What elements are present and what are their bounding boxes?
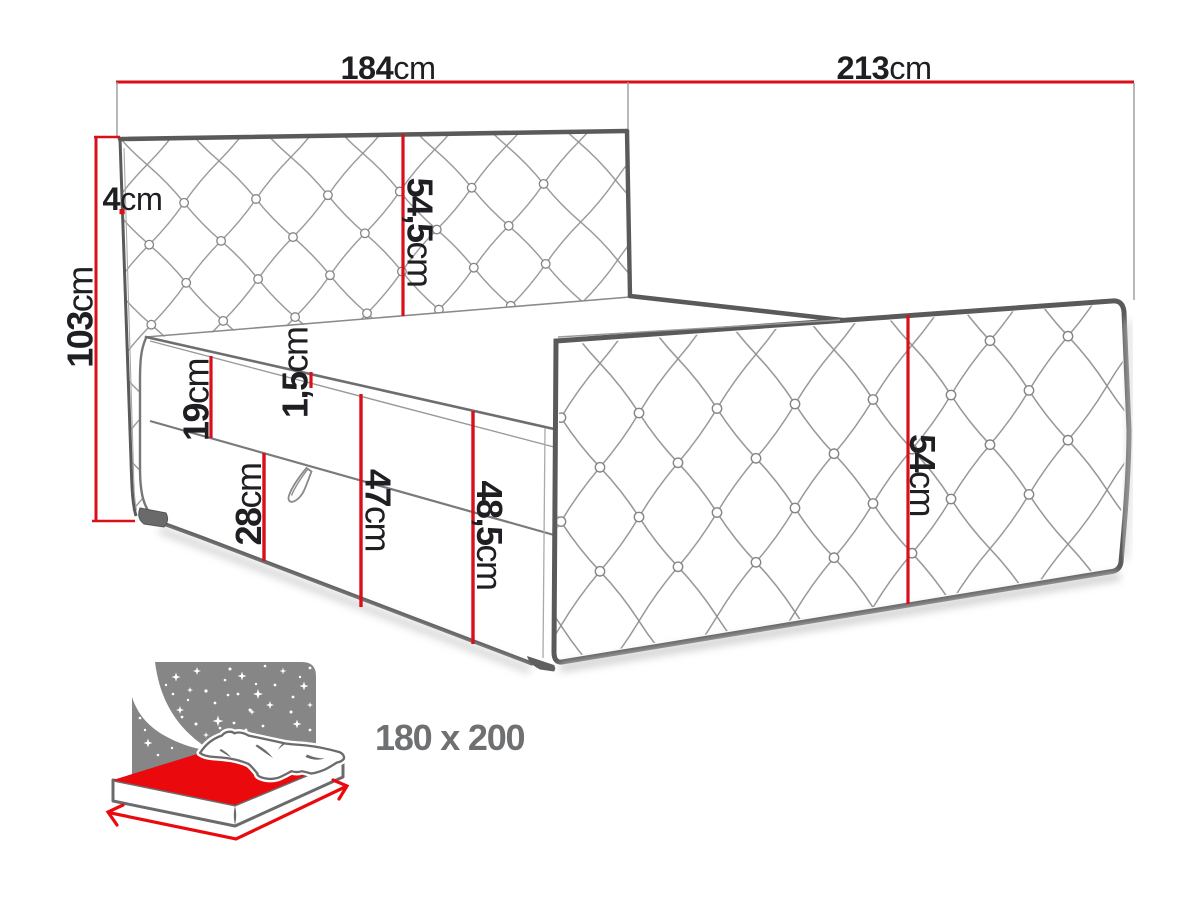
svg-text:1,5cm: 1,5cm [275, 328, 316, 419]
svg-text:47cm: 47cm [357, 469, 398, 551]
svg-text:180 x 200: 180 x 200 [375, 717, 525, 758]
svg-text:213cm: 213cm [836, 50, 931, 86]
svg-text:4cm: 4cm [103, 181, 163, 217]
svg-text:54cm: 54cm [902, 434, 943, 516]
svg-text:54,5cm: 54,5cm [399, 177, 440, 286]
svg-text:28cm: 28cm [228, 463, 269, 545]
svg-text:103cm: 103cm [60, 267, 101, 368]
svg-text:48,5cm: 48,5cm [469, 480, 510, 589]
svg-text:19cm: 19cm [175, 359, 216, 441]
svg-text:184cm: 184cm [340, 50, 435, 86]
